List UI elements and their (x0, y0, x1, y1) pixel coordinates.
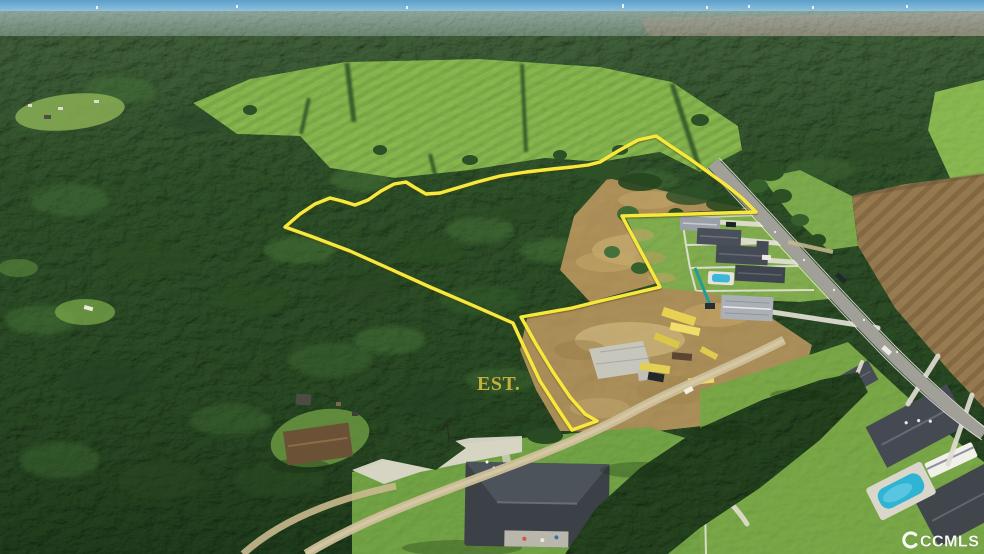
parked-car (762, 255, 771, 260)
house-4 (735, 265, 786, 284)
shed (296, 393, 312, 405)
parked-truck (726, 222, 736, 228)
house-2 (697, 228, 742, 246)
boundary-est-label: EST. (477, 373, 520, 395)
porch (504, 530, 568, 547)
house-under-construction (720, 295, 773, 322)
aerial-photo: EST. CCMLS (0, 0, 984, 554)
watermark-text: CCMLS (920, 534, 979, 551)
swimming-pool (708, 271, 735, 285)
aerial-photo-svg: EST. CCMLS (0, 0, 984, 554)
